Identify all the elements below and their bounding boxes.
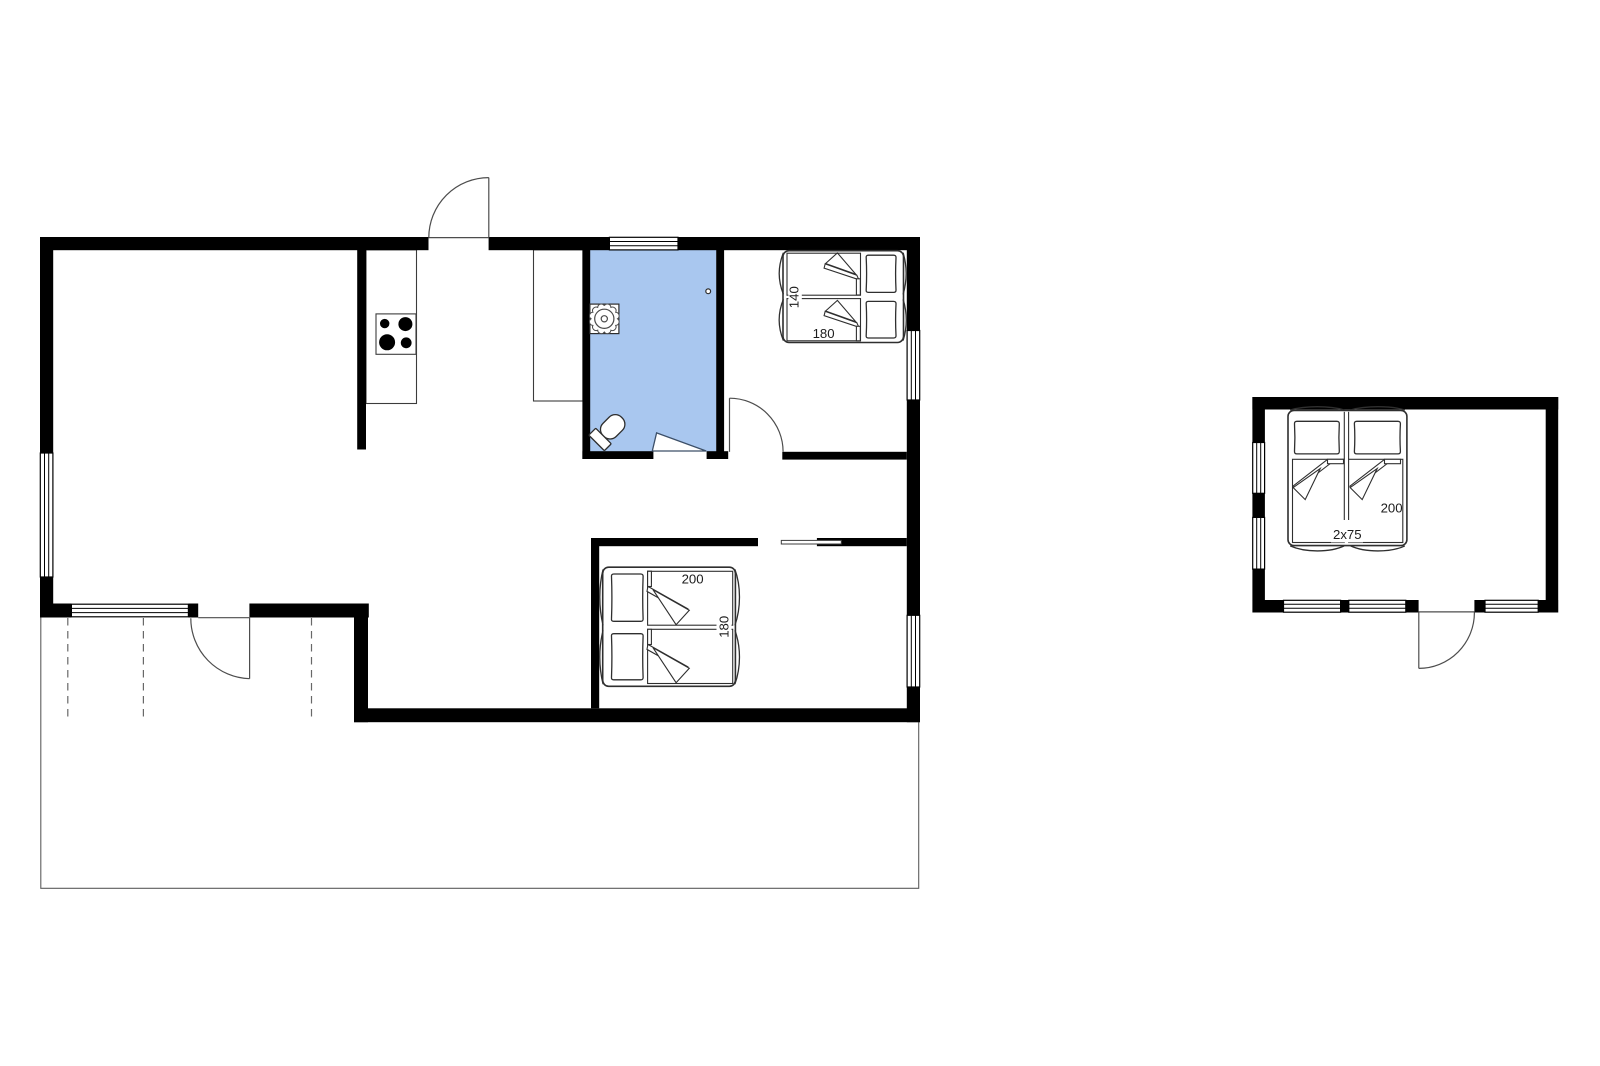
svg-text:200: 200 xyxy=(1381,501,1403,516)
svg-text:2x75: 2x75 xyxy=(1333,527,1362,542)
svg-text:140: 140 xyxy=(787,286,802,308)
svg-text:180: 180 xyxy=(717,616,732,638)
svg-text:180: 180 xyxy=(813,326,835,341)
svg-text:200: 200 xyxy=(682,572,704,587)
